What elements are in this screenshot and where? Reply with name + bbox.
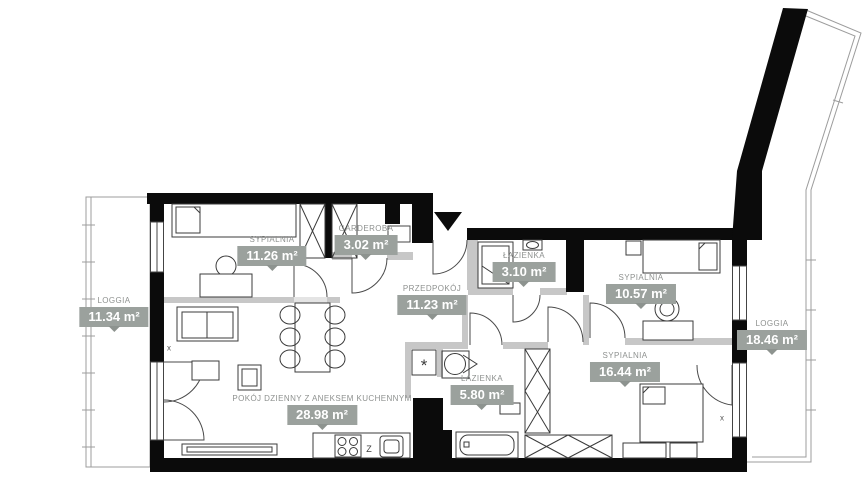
floorplan-drawing bbox=[0, 0, 868, 480]
room-label-loggia-left: LOGGIA 11.34 m² bbox=[79, 296, 148, 327]
room-area-badge: 11.23 m² bbox=[397, 295, 466, 315]
washing-machine-marker: * bbox=[421, 353, 428, 371]
room-name: ŁAZIENKA bbox=[493, 251, 556, 261]
room-name: SYPIALNIA bbox=[606, 273, 676, 283]
room-name: SYPIALNIA bbox=[590, 351, 660, 361]
dining-table-chairs bbox=[280, 303, 345, 372]
room-name: PRZEDPOKÓJ bbox=[397, 284, 466, 294]
bed-single-1 bbox=[172, 204, 296, 237]
radiator bbox=[182, 444, 277, 455]
nightstand-3 bbox=[670, 443, 697, 458]
room-name: LOGGIA bbox=[737, 319, 807, 329]
bedroom1-door-swing bbox=[294, 264, 327, 297]
tall-closet-column bbox=[525, 349, 550, 433]
room-area-badge: 11.34 m² bbox=[79, 307, 148, 327]
bathroom2-door-swing bbox=[470, 313, 502, 345]
room-label-garderoba: GARDEROBA 3.02 m² bbox=[335, 224, 398, 255]
bed-double bbox=[623, 384, 703, 458]
entrance-arrow-icon bbox=[434, 212, 462, 231]
bottom-wall bbox=[150, 458, 747, 472]
entrance-door-swing bbox=[433, 240, 467, 274]
nightstand-2 bbox=[623, 443, 666, 458]
kitchen-z-marker: Z bbox=[366, 444, 372, 454]
bathroom-step-wall bbox=[413, 398, 452, 458]
room-label-sypialnia-2: SYPIALNIA 10.57 m² bbox=[606, 273, 676, 304]
room-area-badge: 11.26 m² bbox=[237, 246, 306, 266]
bed-single-2 bbox=[626, 240, 720, 273]
room-label-sypialnia-1: SYPIALNIA 11.26 m² bbox=[237, 235, 306, 266]
room-area-badge: 16.44 m² bbox=[590, 362, 660, 382]
nightstand-1 bbox=[626, 241, 641, 255]
bedroom3-door-swing bbox=[548, 307, 583, 342]
room-name: LOGGIA bbox=[79, 296, 148, 306]
room-area-badge: 5.80 m² bbox=[451, 385, 514, 405]
bathtub bbox=[456, 432, 518, 458]
room-area-badge: 3.10 m² bbox=[493, 262, 556, 282]
wardrobe-door-swing bbox=[352, 258, 387, 293]
room-area-badge: 10.57 m² bbox=[606, 284, 676, 304]
room-label-lazienka-1: ŁAZIENKA 3.10 m² bbox=[493, 251, 556, 282]
armchair bbox=[192, 361, 219, 380]
room-name: GARDEROBA bbox=[335, 224, 398, 234]
room-label-sypialnia-3: SYPIALNIA 16.44 m² bbox=[590, 351, 660, 382]
room-area-badge: 18.46 m² bbox=[737, 330, 807, 350]
room-area-badge: 3.02 m² bbox=[335, 235, 398, 255]
sofa bbox=[177, 307, 238, 341]
room-name: ŁAZIENKA bbox=[451, 374, 514, 384]
bathroom1-sink bbox=[523, 240, 542, 250]
bathroom1-door-swing bbox=[513, 295, 540, 322]
room-area-badge: 28.98 m² bbox=[287, 405, 357, 425]
bedroom2-door-swing bbox=[590, 303, 625, 338]
kitchen-counter bbox=[313, 433, 410, 458]
floor-plan: SYPIALNIA 11.26 m² GARDEROBA 3.02 m² ŁAZ… bbox=[0, 0, 868, 480]
wide-closet bbox=[525, 435, 612, 458]
x-marker-left: x bbox=[167, 344, 171, 353]
room-label-przedpokoj: PRZEDPOKÓJ 11.23 m² bbox=[397, 284, 466, 315]
room-name: POKÓJ DZIENNY Z ANEKSEM KUCHENNYM bbox=[232, 394, 411, 404]
room-name: SYPIALNIA bbox=[237, 235, 306, 245]
left-loggia-outline bbox=[86, 197, 150, 467]
x-marker-right: x bbox=[720, 414, 724, 423]
room-label-loggia-right: LOGGIA 18.46 m² bbox=[737, 319, 807, 350]
diagonal-wall bbox=[732, 8, 808, 240]
room-label-pokoj-dzienny: POKÓJ DZIENNY Z ANEKSEM KUCHENNYM 28.98 … bbox=[232, 394, 411, 425]
coffee-table bbox=[238, 365, 261, 390]
room-label-lazienka-2: ŁAZIENKA 5.80 m² bbox=[451, 374, 514, 405]
balcony-door-swing-lower bbox=[164, 400, 204, 440]
top-wall bbox=[147, 193, 433, 204]
